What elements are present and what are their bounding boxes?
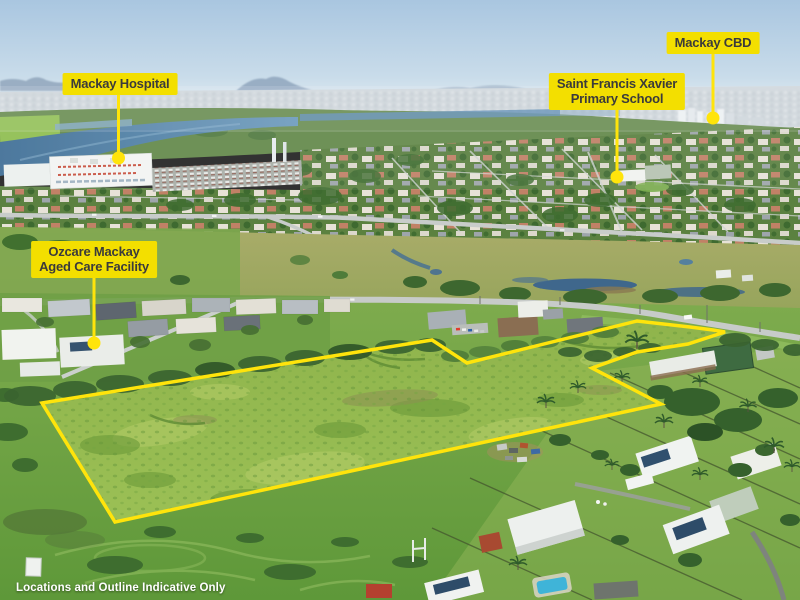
small-shed <box>26 558 42 577</box>
location-dot-hospital <box>112 152 125 165</box>
callout-label-line1: Ozcare Mackay <box>39 244 149 259</box>
callout-label: Mackay Hospital <box>71 76 170 91</box>
location-dot-ozcare <box>88 337 101 350</box>
aerial-property-listing-photo: Mackay Hospital Mackay CBD Saint Francis… <box>0 0 800 600</box>
red-roof-building <box>366 584 392 598</box>
callout-label-line1: Saint Francis Xavier <box>557 76 677 91</box>
location-dot-school <box>611 171 624 184</box>
callout-saint-francis-xavier-primary-school: Saint Francis Xavier Primary School <box>549 73 685 110</box>
callout-mackay-cbd: Mackay CBD <box>667 32 760 54</box>
callout-label-line2: Primary School <box>557 91 677 106</box>
callout-label: Mackay CBD <box>675 35 752 50</box>
callout-ozcare-aged-care: Ozcare Mackay Aged Care Facility <box>31 241 157 278</box>
callout-mackay-hospital: Mackay Hospital <box>63 73 178 95</box>
disclaimer-text: Locations and Outline Indicative Only <box>16 582 225 594</box>
callout-label-line2: Aged Care Facility <box>39 259 149 274</box>
location-dot-cbd <box>707 112 720 125</box>
